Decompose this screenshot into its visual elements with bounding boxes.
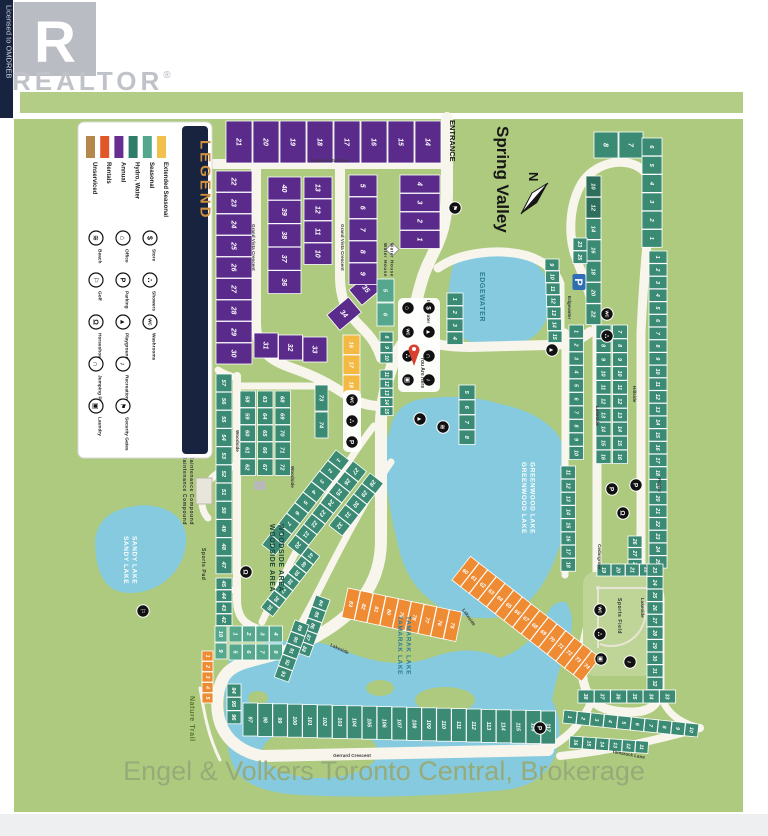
parking-sign-icon: P [572, 274, 585, 290]
lot-group-tam-94-96: 949596 [227, 684, 241, 724]
lot-number: 22 [589, 310, 595, 318]
playground-icon: ▲ [423, 326, 435, 338]
lot-number: 42 [220, 616, 226, 624]
legend-icon-glyph: ∴ [146, 278, 153, 283]
lot-number: 10 [572, 450, 578, 456]
lot-number: 18 [564, 562, 570, 568]
golf-icon: ⚐ [89, 273, 103, 287]
pin-dot [412, 347, 416, 351]
icon-glyph: ▲ [548, 347, 555, 353]
icon-glyph: P [536, 726, 543, 731]
lot-number: 16 [564, 535, 570, 542]
lot-number: 21 [235, 137, 242, 146]
legend-amenity-label: Playground [124, 333, 130, 359]
lot-number: 56 [220, 398, 226, 405]
lot-number: 1 [416, 238, 423, 242]
lake-island [366, 680, 394, 696]
legend-icon-glyph: ⌂ [119, 236, 126, 240]
lot-number: 16 [370, 138, 377, 146]
map-label: Nature Trail [188, 696, 195, 742]
lot-number: 28 [230, 306, 237, 315]
lot-number: 12 [550, 298, 556, 304]
playground-icon: ▲ [546, 344, 558, 356]
bottom-band [0, 814, 768, 836]
lot-number: 40 [280, 184, 287, 193]
legend-icon-glyph: ▲ [119, 319, 126, 326]
lake-edgewater [449, 255, 550, 346]
playground-icon: ▲ [414, 413, 426, 425]
legend-amenity-label: Office [124, 249, 130, 263]
lot-number: 27 [631, 549, 637, 557]
lot-number: 23 [654, 533, 660, 540]
legend-title: LEGEND [197, 140, 214, 221]
lot-number: 29 [651, 642, 657, 649]
lot-number: 14 [551, 322, 557, 328]
washrooms-icon: WC [402, 326, 414, 338]
lot-number: 18 [316, 138, 323, 146]
lot-number: 114 [500, 722, 506, 731]
lot-group-vista-south: 313233 [254, 333, 327, 362]
street-label: Woodside [235, 430, 240, 452]
jumping-pillow-icon: ∩ [89, 357, 103, 371]
parking-icon: P [630, 479, 642, 491]
lot-number: 67 [261, 464, 267, 471]
lot-number: 6 [359, 206, 366, 210]
lot-number: 104 [351, 718, 357, 727]
street-label: Grand Vista Crescent [340, 224, 345, 271]
lot-number: 97 [246, 717, 252, 724]
lot-group-sf-23-32: 23242526272829303132 [647, 564, 663, 690]
lot-number: 20 [614, 566, 620, 573]
lot-number: 12 [589, 204, 595, 211]
diamond-base [596, 586, 600, 590]
lot-number: 29 [230, 327, 237, 336]
lot-number: 15 [600, 440, 606, 447]
map-label: TAMARAK LAKE [396, 616, 403, 675]
legend-icon-glyph: ♪ [119, 362, 126, 366]
lot-number: 28 [651, 629, 657, 636]
lot-number: 26 [230, 263, 237, 272]
lot-number: 58 [244, 396, 250, 403]
lot-group-lake-1-10: 12345678910 [569, 325, 584, 460]
listing-map-page: R REALTOR® Licensed to OMDREB 2120191817… [0, 0, 768, 836]
legend-icon-glyph: ▣ [92, 403, 99, 410]
lot-number: 71 [279, 447, 285, 453]
lot-number: 12 [314, 206, 321, 214]
lot-group-ne-23-25: 2325 [573, 238, 587, 264]
lot-number: 20 [262, 137, 269, 146]
lot-number: 70 [279, 430, 285, 437]
lot-number: 10 [549, 274, 555, 280]
lot-number: 11 [564, 470, 570, 476]
lot-number: 8 [616, 344, 622, 347]
lot-number: 26 [651, 604, 657, 611]
lot-number: 14 [424, 138, 431, 146]
legend-site-type-label: Extended Seasonal [162, 162, 168, 217]
lot-number: 10 [383, 355, 389, 361]
legend-icon-glyph: P [119, 278, 126, 283]
lot-number: 14 [589, 226, 595, 233]
lot-number: 15 [397, 138, 404, 146]
parking-sign-glyph: P [572, 278, 584, 285]
lot-group-edge-5-8: 5678 [459, 385, 475, 445]
lot-number: 106 [380, 719, 386, 729]
legend-icon-glyph: $ [146, 236, 153, 240]
lot-number: 25 [651, 591, 657, 598]
washrooms-icon: WC [594, 604, 606, 616]
lot-number: 63 [261, 396, 267, 403]
lot-number: 2 [572, 343, 578, 347]
lot-number: 51 [220, 489, 226, 495]
lot-number: 64 [261, 413, 267, 420]
washrooms-icon: WC [346, 394, 358, 406]
lot-number: 13 [383, 390, 389, 396]
icon-glyph: P [632, 483, 639, 488]
lot-number: 108 [410, 719, 416, 728]
street-label: Cedargrove [597, 544, 602, 570]
lot-number: 17 [564, 549, 570, 556]
lot-number: 36 [615, 694, 621, 701]
icon-glyph: ⚐ [139, 608, 146, 614]
lot-number: 5 [359, 184, 366, 188]
lot-number: 26 [631, 538, 637, 545]
street-label: Woodside [290, 466, 295, 488]
legend-site-type-label: Seasonal [148, 162, 154, 189]
lot-group-extended-16-18: 161718 [343, 335, 360, 395]
lot-number: 14 [600, 426, 606, 432]
lot-number: 33 [664, 694, 670, 700]
legend-icon-glyph: ⚐ [92, 277, 100, 283]
maintenance-compound-pad [196, 478, 212, 504]
lot-number: 24 [654, 545, 660, 552]
map-label: WOODSIDE AREA [277, 524, 284, 592]
lot-number: 11 [638, 744, 644, 750]
lot-number: 8 [572, 425, 578, 428]
legend-site-type-label: Annual [119, 162, 125, 183]
lot-number: 14 [654, 419, 660, 425]
lot-number: 23 [651, 566, 657, 573]
lot-number: 38 [280, 231, 287, 239]
lot-number: 3 [204, 676, 210, 679]
lot-number: 50 [220, 507, 226, 514]
icon-glyph: ∴ [404, 354, 411, 359]
street-label: Poplar [657, 478, 662, 493]
north-label: N [526, 172, 541, 181]
lot-number: 8 [383, 336, 389, 339]
parking-icon: P [534, 722, 546, 734]
lot-group-woodside-w2: 45444342 [216, 578, 232, 626]
lot-number: 113 [485, 722, 491, 731]
lot-number: 94 [230, 687, 236, 694]
showers-icon: ∴ [601, 330, 613, 342]
lot-number: 57 [220, 380, 226, 387]
map-label: Maintenance Compound [181, 455, 187, 525]
street-label: Hillside [632, 386, 637, 403]
spring-valley-map: R REALTOR® Licensed to OMDREB 2120191817… [0, 0, 768, 836]
lot-number: 105 [366, 718, 372, 728]
lot-group-edge-11-15: 1112131415 [380, 370, 393, 416]
lot-number: 74 [317, 422, 323, 429]
lot-number: 9 [383, 346, 389, 349]
icon-glyph: ⚑ [451, 205, 458, 211]
parking-icon: P [346, 436, 358, 448]
lot-number: 83 [347, 600, 354, 607]
legend-amenity-label: Golf [97, 291, 103, 301]
lot-number: 20 [654, 494, 660, 501]
lot-group-woodside-c3: 6869707172 [275, 391, 291, 476]
security-gates-icon: ⚑ [116, 399, 130, 413]
lot-number: 21 [654, 507, 660, 514]
lot-number: 8 [602, 143, 609, 147]
lot-number: 34 [647, 694, 653, 700]
lot-number: 20 [589, 289, 595, 297]
laundry-icon: ▣ [89, 399, 103, 413]
icon-glyph: ∴ [596, 632, 603, 637]
lot-number: 16 [600, 454, 606, 461]
lot-number: 37 [280, 255, 287, 264]
lot-number: 8 [654, 345, 660, 348]
lot-number: 14 [616, 426, 622, 432]
lot-number: 25 [230, 241, 237, 250]
legend-icon-glyph: Ω [92, 319, 99, 325]
legend-amenity-label: Store [151, 249, 157, 262]
lot-number: 37 [598, 694, 604, 701]
lot-number: 3 [572, 357, 578, 360]
laundry-icon: ▣ [402, 374, 414, 386]
lot-number: 11 [314, 228, 321, 235]
lot-number: 16 [589, 247, 595, 254]
icon-glyph: WC [406, 329, 411, 336]
lot-number: 25 [576, 253, 582, 260]
lot-group-east-1-25: 1234567891011121314151617181920212223242… [649, 251, 667, 568]
lot-group-mid-dbl-a: 78910111213141516 [596, 325, 611, 464]
lot-number: 17 [347, 362, 353, 369]
lot-group-woodside-c2: 6364656667 [258, 391, 274, 476]
lot-number: 3 [654, 281, 660, 284]
lot-number: 9 [572, 438, 578, 441]
lot-number: 111 [455, 721, 461, 729]
lot-number: 35 [631, 694, 637, 701]
legend-amenity-label: Washrooms [151, 333, 157, 361]
lot-group-woodside-c1: 5859606162 [240, 391, 256, 476]
lot-group-rentals-1-5: 12345 [202, 651, 213, 703]
lot-number: 2 [579, 716, 585, 721]
lot-number: 33 [311, 346, 318, 354]
lot-number: 62 [244, 464, 250, 471]
lot-number: 4 [416, 181, 423, 186]
lot-group-seasonal-row-a: 1234 [229, 626, 283, 642]
icon-glyph: ▲ [425, 329, 432, 335]
lot-number: 11 [549, 286, 555, 292]
lot-number: 22 [654, 520, 660, 527]
legend-site-type-label: Hydro, Water [134, 162, 140, 200]
lot-number: 23 [576, 240, 582, 247]
lot-number: 31 [262, 342, 269, 350]
lot-number: 21 [628, 566, 634, 573]
map-label: GREENWOOD LAKE [529, 462, 536, 534]
lot-number: 1 [451, 298, 457, 301]
lot-number: 30 [651, 655, 657, 661]
lot-number: 4 [606, 719, 612, 724]
office-icon: ⌂ [402, 302, 414, 314]
store-icon: $ [423, 302, 435, 314]
licensed-text: Licensed to OMDREB [5, 5, 14, 78]
lot-number: 4 [204, 685, 210, 689]
laundry-icon: ▣ [595, 653, 607, 665]
legend-site-type-label: Rentals [105, 162, 111, 184]
lot-number: 15 [564, 522, 570, 529]
map-label: Sports Field [616, 598, 622, 634]
lot-number: 60 [244, 430, 250, 437]
lot-number: 66 [261, 447, 267, 454]
map-label: Water House [390, 243, 395, 277]
lot-number: 15 [654, 432, 660, 439]
lot-number: 13 [550, 310, 556, 316]
lot-number: 22 [230, 177, 237, 186]
lot-number: 9 [654, 357, 660, 360]
icon-glyph: ∴ [348, 419, 355, 424]
beach-icon: ≋ [89, 231, 103, 245]
lot-number: 10 [654, 368, 660, 374]
map-label: Water House [383, 243, 388, 277]
lot-group-seasonal-row-b: 5678 [229, 644, 283, 660]
lot-number: 101 [306, 717, 312, 726]
lot-number: 45 [220, 580, 226, 588]
lot-group-vista-east-a: 56789 [349, 175, 377, 285]
attribution-text: Engel & Volkers Toronto Central, Brokera… [123, 756, 645, 786]
lot-number: 8 [359, 250, 366, 254]
lot-number: 69 [279, 413, 285, 420]
lot-number: 10 [314, 250, 321, 258]
legend-swatch [100, 136, 109, 158]
map-label: EDGEWATER [478, 272, 485, 322]
lot-group-edge-1-4: 1234 [447, 293, 463, 345]
lot-number: 12 [625, 743, 631, 749]
lot-number: 82 [359, 603, 366, 610]
lot-group-edge-8-10: 8910 [380, 332, 393, 363]
lot-number: 2 [654, 267, 660, 271]
lot-number: 100 [291, 716, 297, 725]
icon-glyph: ≋ [439, 424, 446, 429]
recreation-hall-icon: ♪ [116, 357, 130, 371]
playground-icon: ▲ [116, 315, 130, 329]
legend-site-type-label: Unserviced [91, 162, 97, 195]
lot-number: 43 [220, 604, 226, 612]
lot-number: 12 [654, 394, 660, 400]
lot-number: 13 [314, 184, 321, 192]
lot-number: 1 [231, 632, 237, 635]
washrooms-icon: WC [143, 315, 157, 329]
icon-glyph: P [608, 487, 615, 492]
lot-number: 16 [616, 454, 622, 461]
lot-number: 61 [244, 447, 250, 453]
lot-number: 1 [204, 655, 210, 658]
lot-number: 10 [600, 370, 606, 376]
lot-number: 9 [600, 358, 606, 361]
top-green-bar [20, 92, 743, 113]
street-label: Grand Vista Drive [311, 158, 350, 163]
lot-number: 23 [230, 198, 237, 207]
lot-number: 99 [276, 717, 282, 723]
icon-glyph: WC [605, 311, 610, 318]
lot-number: 73 [317, 395, 323, 402]
legend-amenity-label: Laundry [97, 417, 103, 436]
street-label: Lakeside [640, 598, 645, 618]
icon-glyph: ▣ [404, 377, 411, 383]
lot-group-ne-1-6: 654321 [642, 138, 662, 247]
icon-glyph: Ω [619, 510, 626, 515]
showers-icon: ∴ [594, 628, 606, 640]
lot-number: 14 [564, 509, 570, 515]
icon-glyph: WC [350, 397, 355, 404]
icon-glyph: ∴ [603, 334, 610, 339]
horseshoes-icon: Ω [240, 566, 252, 578]
lot-group-vista-east-b: 4321 [400, 175, 440, 249]
lot-number: 36 [280, 278, 287, 286]
legend-swatch [114, 136, 123, 158]
lot-number: 11 [654, 381, 660, 387]
map-label: SANDY LAKE [122, 536, 129, 584]
lot-number: 9 [616, 358, 622, 361]
street-label: Lakeside [595, 406, 600, 426]
lot-number: 1 [654, 256, 660, 259]
lot-group-sf-33-38: 383736353433 [578, 690, 676, 703]
street-label: Grand Vista Crescent [251, 224, 256, 271]
golf-icon: ⚐ [137, 605, 149, 617]
lot-number: 13 [564, 496, 570, 502]
legend-icon-glyph: ∩ [92, 361, 99, 366]
parking-icon: P [116, 273, 130, 287]
map-label: Sports Pad [200, 548, 206, 580]
lot-number: 16 [572, 739, 578, 745]
icon-glyph: ⌂ [404, 306, 411, 310]
lot-number: 55 [220, 416, 226, 423]
lot-group-lake-11-18: 1112131415161718 [561, 466, 576, 571]
lot-number: 32 [286, 344, 293, 352]
lot-number: 68 [279, 396, 285, 403]
lot-number: 18 [347, 382, 353, 389]
lot-group-sf-19-22: 19202122 [597, 564, 653, 576]
map-label: WOODSIDE AREA [268, 524, 275, 592]
legend-swatch [129, 136, 138, 158]
lot-number: 4 [654, 293, 660, 297]
lot-number: 102 [321, 717, 327, 726]
security-gates-icon: ⚑ [449, 202, 461, 214]
lot-number: 14 [598, 741, 604, 747]
legend-icon-glyph: WC [147, 318, 152, 326]
lot-number: 4 [572, 370, 578, 374]
lot-group-vista-mid-b: 13121110 [304, 177, 332, 265]
office-icon: ⌂ [116, 231, 130, 245]
entrance-label: ENTRANCE [448, 120, 457, 162]
lot-number: 15 [616, 440, 622, 447]
lot-number: 3 [416, 201, 423, 205]
icon-glyph: ▣ [597, 656, 604, 662]
lot-number: 15 [585, 740, 591, 746]
street-label: Edgewater [567, 296, 572, 319]
lot-number: 13 [616, 412, 622, 418]
lot-number: 12 [383, 381, 389, 387]
lot-number: 1 [572, 330, 578, 333]
lot-number: 13 [654, 407, 660, 413]
horseshoes-icon: Ω [89, 315, 103, 329]
map-label: GREENWOOD LAKE [520, 462, 527, 534]
lot-number: 80 [385, 608, 392, 615]
lot-number: 18 [589, 268, 595, 275]
lot-number: 115 [515, 722, 521, 732]
lot-number: 11 [616, 385, 622, 391]
lot-number: 72 [279, 464, 285, 471]
